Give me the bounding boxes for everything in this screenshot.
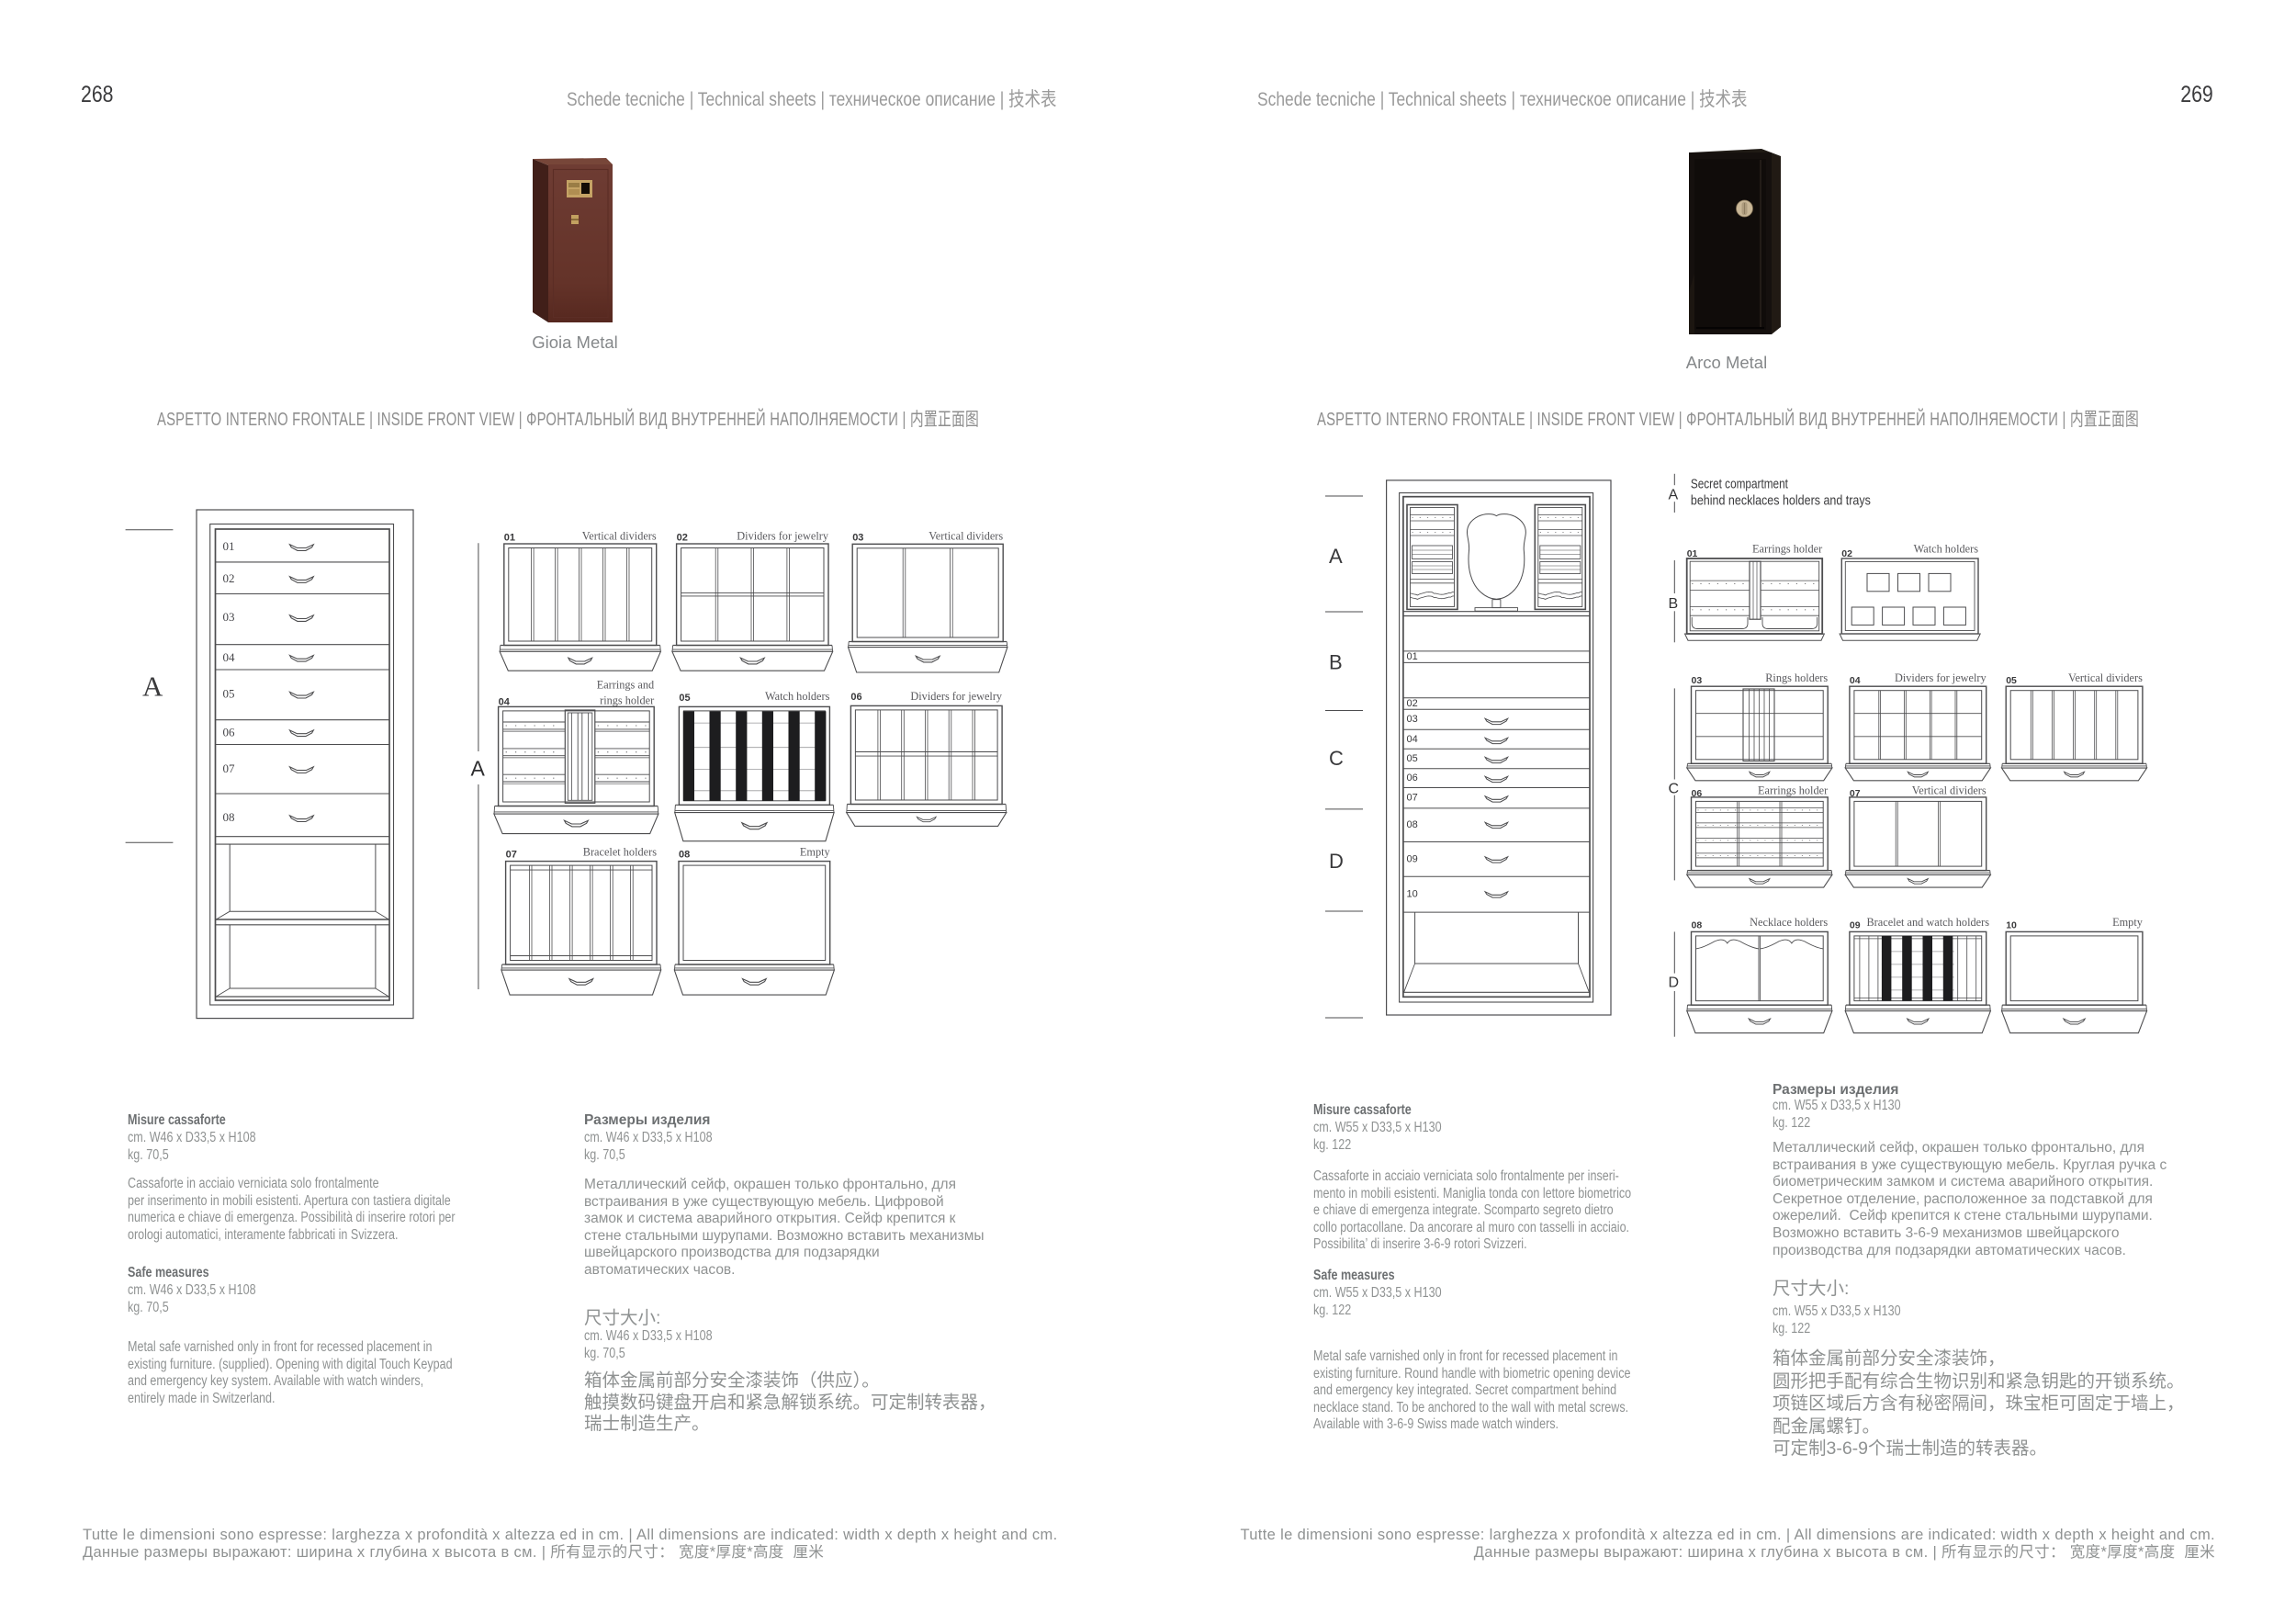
svg-text:Necklace holders: Necklace holders (1750, 916, 1828, 929)
svg-text:06: 06 (850, 692, 861, 703)
svg-text:Empty: Empty (2112, 916, 2144, 929)
svg-text:Earrings and: Earrings and (597, 679, 655, 692)
svg-text:02: 02 (1841, 548, 1852, 559)
svg-text:01: 01 (223, 539, 235, 553)
svg-text:06: 06 (1407, 773, 1418, 784)
svg-text:Dividers for jewelry: Dividers for jewelry (1895, 671, 1987, 684)
svg-text:Dividers for jewelry: Dividers for jewelry (910, 690, 1003, 703)
svg-text:09: 09 (1850, 920, 1861, 931)
svg-text:07: 07 (1407, 793, 1418, 804)
svg-text:06: 06 (223, 725, 236, 739)
svg-text:C: C (1329, 747, 1344, 770)
svg-text:B: B (1669, 596, 1679, 612)
svg-text:02: 02 (223, 571, 235, 585)
svg-text:05: 05 (1407, 753, 1418, 764)
svg-text:08: 08 (1692, 920, 1703, 931)
svg-text:05: 05 (223, 687, 235, 701)
svg-text:Rings holders: Rings holders (1765, 671, 1828, 684)
svg-text:07: 07 (223, 761, 236, 775)
svg-text:Watch holders: Watch holders (765, 690, 830, 703)
svg-text:03: 03 (852, 533, 863, 544)
svg-text:D: D (1329, 850, 1344, 873)
svg-text:04: 04 (1850, 675, 1861, 686)
svg-text:Watch holders: Watch holders (1914, 543, 1979, 556)
svg-text:C: C (1669, 782, 1680, 797)
svg-text:Bracelet holders: Bracelet holders (583, 846, 657, 859)
svg-text:B: B (1329, 651, 1343, 674)
svg-text:04: 04 (1407, 734, 1418, 745)
svg-text:Dividers for jewelry: Dividers for jewelry (737, 530, 829, 543)
svg-text:02: 02 (677, 533, 688, 544)
svg-text:03: 03 (1692, 675, 1703, 686)
svg-text:05: 05 (2006, 675, 2017, 686)
svg-text:behind necklaces holders and t: behind necklaces holders and trays (1691, 492, 1871, 508)
svg-text:03: 03 (223, 610, 235, 624)
svg-text:Earrings holder: Earrings holder (1752, 543, 1822, 556)
svg-text:Bracelet and watch holders: Bracelet and watch holders (1866, 916, 1989, 929)
svg-text:Vertical dividers: Vertical dividers (2068, 671, 2143, 684)
svg-text:Vertical dividers: Vertical dividers (929, 530, 1003, 543)
svg-text:07: 07 (506, 850, 517, 861)
svg-text:08: 08 (1407, 819, 1418, 830)
svg-text:A: A (142, 671, 163, 703)
svg-text:D: D (1669, 976, 1680, 991)
svg-text:05: 05 (679, 693, 690, 704)
svg-text:09: 09 (1407, 854, 1418, 865)
svg-text:08: 08 (679, 850, 690, 861)
svg-text:01: 01 (504, 533, 515, 544)
svg-text:02: 02 (1407, 698, 1418, 709)
svg-text:08: 08 (223, 810, 235, 824)
svg-text:01: 01 (1407, 651, 1418, 662)
svg-text:Secret compartment: Secret compartment (1691, 477, 1789, 492)
svg-text:rings holder: rings holder (600, 694, 654, 707)
svg-text:Earrings holder: Earrings holder (1758, 784, 1828, 797)
svg-text:03: 03 (1407, 714, 1418, 725)
svg-text:A: A (1669, 488, 1679, 503)
svg-text:A: A (1329, 545, 1343, 568)
svg-text:Vertical dividers: Vertical dividers (1912, 784, 1986, 797)
svg-text:Empty: Empty (800, 846, 831, 859)
svg-text:A: A (471, 757, 486, 781)
svg-text:10: 10 (1407, 889, 1418, 900)
svg-text:04: 04 (223, 650, 236, 664)
svg-text:Vertical dividers: Vertical dividers (582, 530, 657, 543)
svg-text:10: 10 (2006, 920, 2017, 931)
